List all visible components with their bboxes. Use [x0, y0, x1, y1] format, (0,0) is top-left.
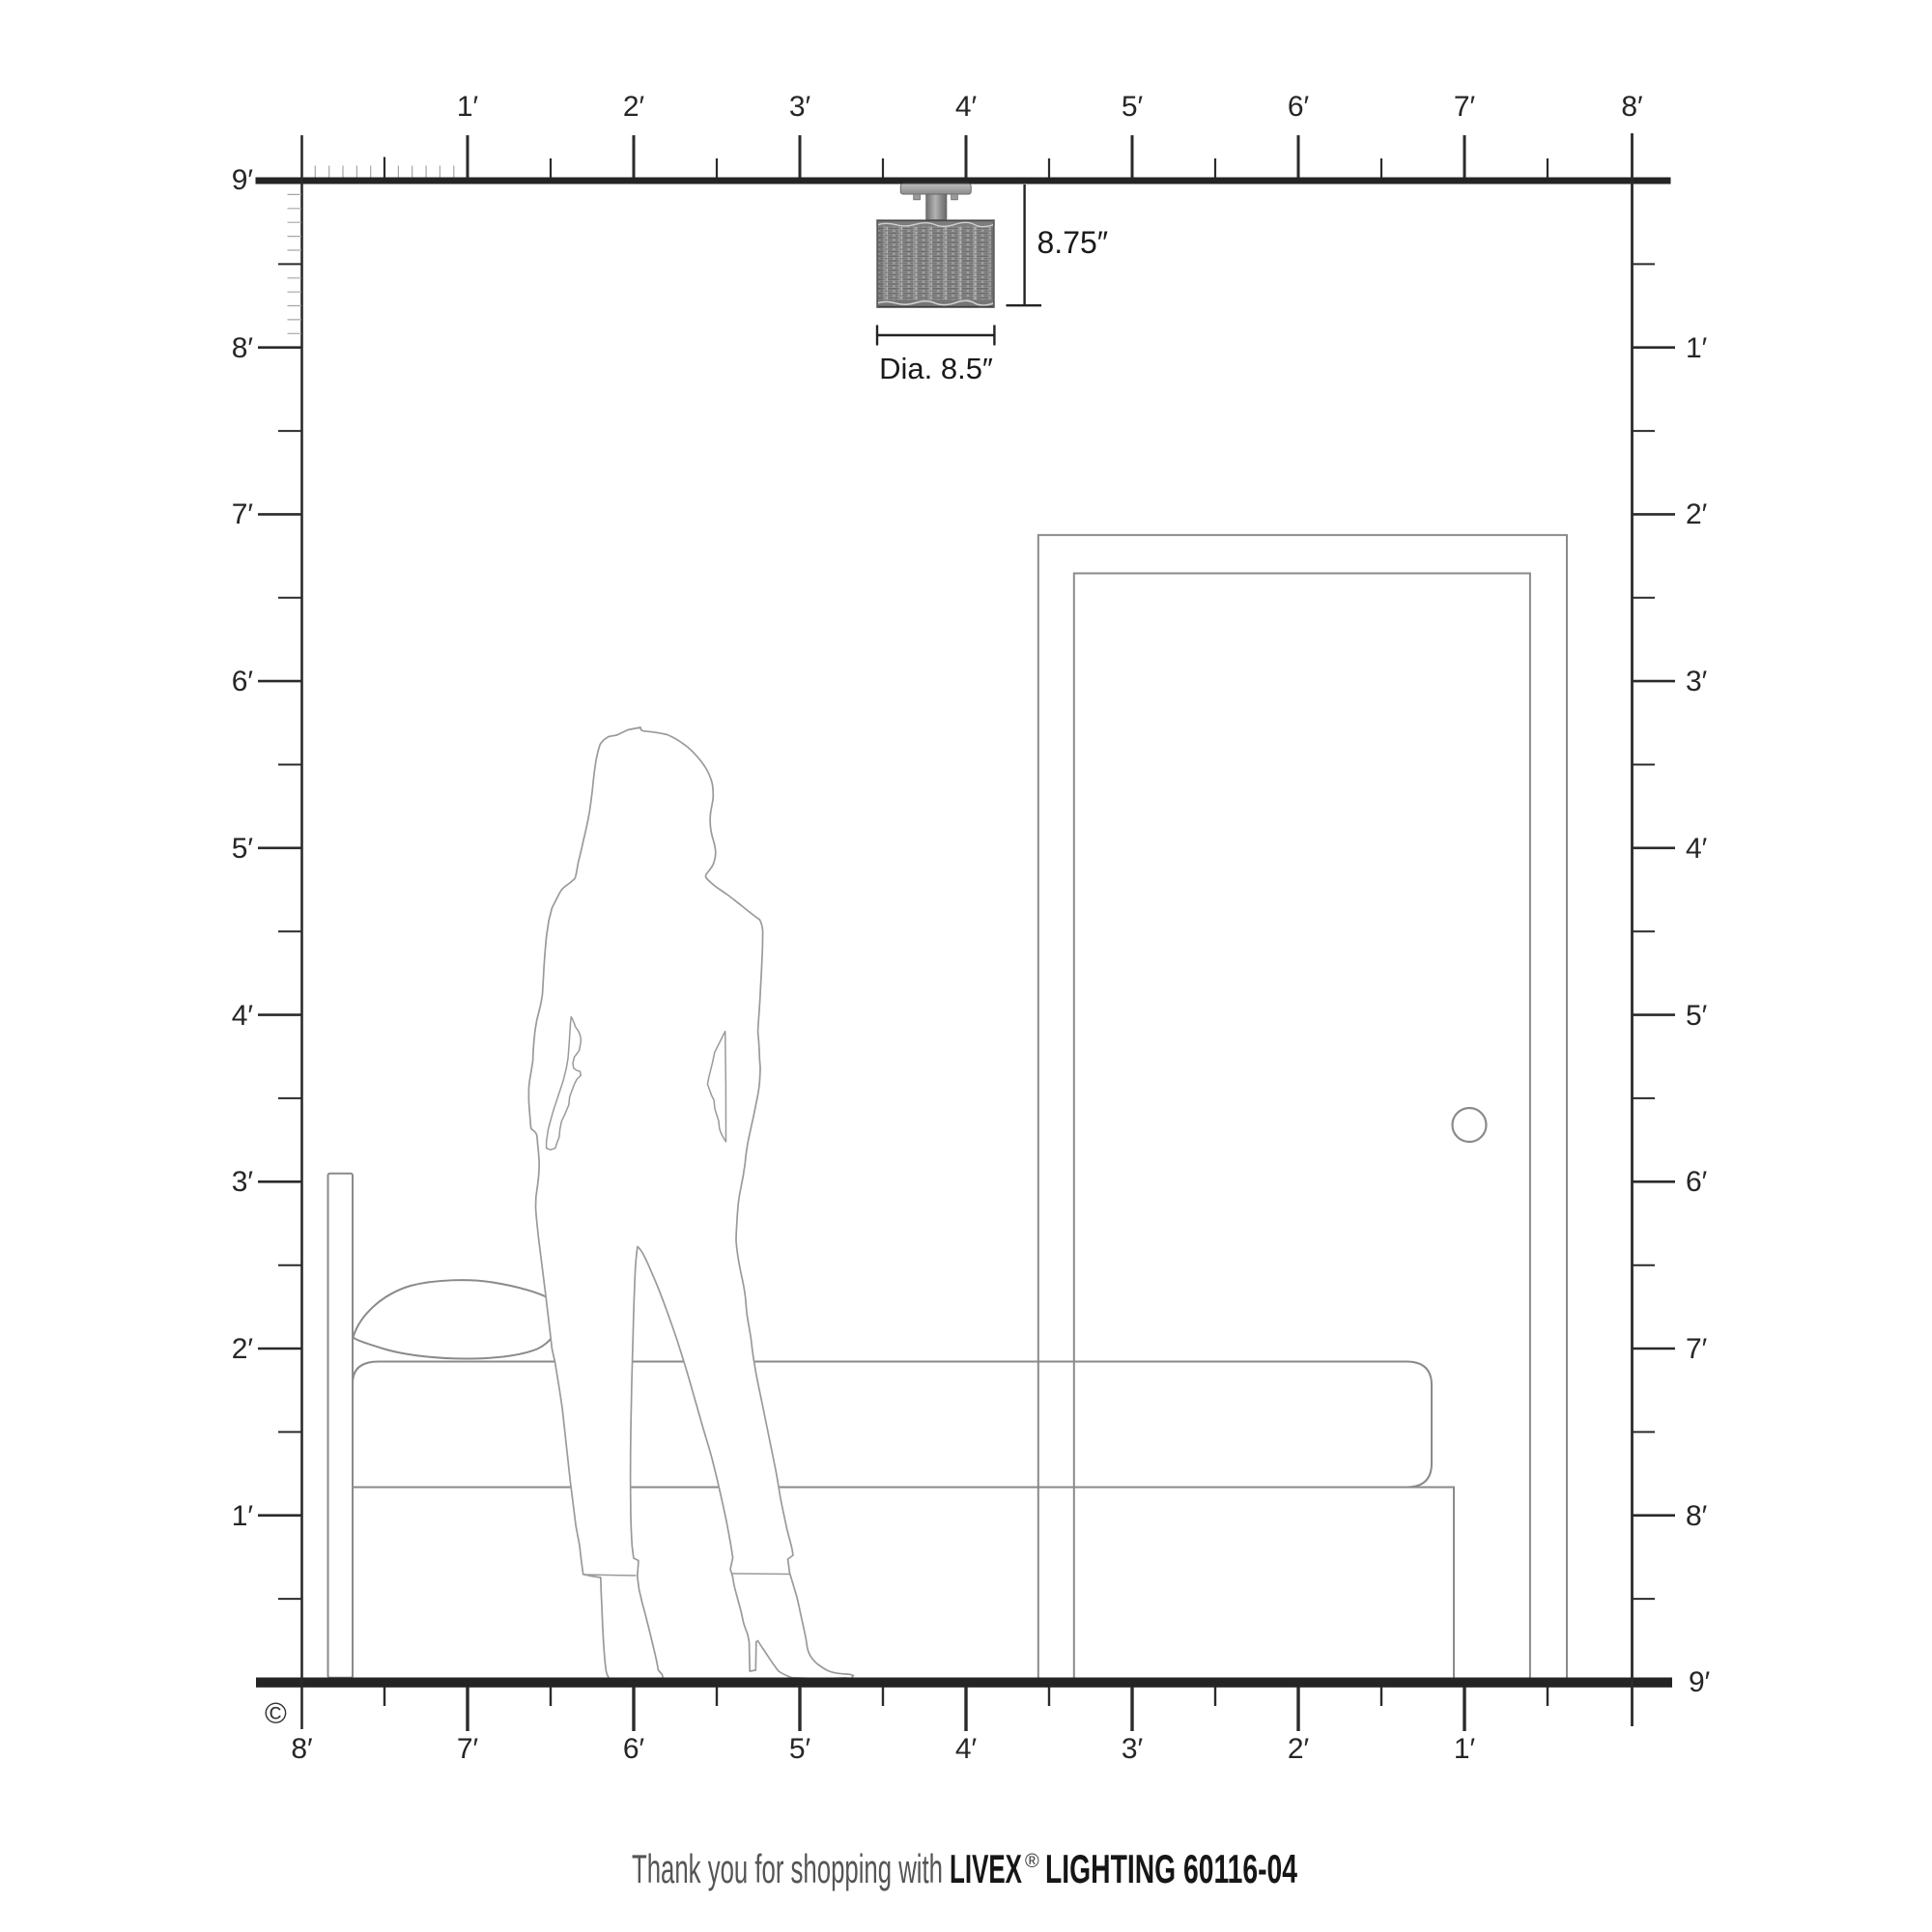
svg-text:7′: 7′ [457, 1733, 479, 1765]
svg-text:4′: 4′ [955, 1733, 978, 1765]
svg-text:5′: 5′ [789, 1733, 811, 1765]
svg-text:3′: 3′ [789, 91, 811, 123]
svg-text:4′: 4′ [955, 91, 978, 123]
svg-text:4′: 4′ [1686, 833, 1708, 865]
svg-text:6′: 6′ [1686, 1166, 1708, 1198]
svg-text:8′: 8′ [1686, 1500, 1708, 1532]
svg-text:8′: 8′ [1621, 91, 1643, 123]
svg-text:7′: 7′ [1454, 91, 1476, 123]
svg-text:Thank you for shopping with: Thank you for shopping with [632, 1846, 943, 1891]
svg-text:1′: 1′ [1454, 1733, 1476, 1765]
svg-text:2′: 2′ [1686, 498, 1708, 530]
svg-text:©: © [265, 1696, 287, 1730]
svg-text:5′: 5′ [1686, 1000, 1708, 1032]
svg-text:2′: 2′ [623, 91, 645, 123]
svg-text:LIVEX: LIVEX [950, 1846, 1022, 1891]
svg-text:6′: 6′ [232, 666, 254, 697]
svg-text:7′: 7′ [232, 498, 254, 530]
svg-text:8.75″: 8.75″ [1037, 225, 1109, 260]
svg-text:6′: 6′ [1288, 91, 1310, 123]
svg-text:7′: 7′ [1686, 1333, 1708, 1365]
svg-text:1′: 1′ [1686, 332, 1708, 364]
svg-text:LIGHTING 60116-04: LIGHTING 60116-04 [1045, 1846, 1297, 1891]
svg-text:5′: 5′ [232, 833, 254, 865]
svg-text:3′: 3′ [232, 1166, 254, 1198]
svg-text:8′: 8′ [232, 332, 254, 364]
svg-text:9′: 9′ [232, 164, 254, 196]
svg-text:®: ® [1025, 1851, 1039, 1872]
svg-text:4′: 4′ [232, 1000, 254, 1032]
svg-text:6′: 6′ [623, 1733, 645, 1765]
svg-text:9′: 9′ [1689, 1666, 1711, 1698]
svg-text:2′: 2′ [232, 1333, 254, 1365]
svg-text:1′: 1′ [232, 1500, 254, 1532]
svg-text:3′: 3′ [1122, 1733, 1144, 1765]
svg-text:8′: 8′ [291, 1733, 313, 1765]
svg-text:Dia. 8.5″: Dia. 8.5″ [879, 352, 993, 385]
svg-text:5′: 5′ [1122, 91, 1144, 123]
svg-text:3′: 3′ [1686, 666, 1708, 697]
svg-text:2′: 2′ [1288, 1733, 1310, 1765]
svg-text:1′: 1′ [457, 91, 479, 123]
